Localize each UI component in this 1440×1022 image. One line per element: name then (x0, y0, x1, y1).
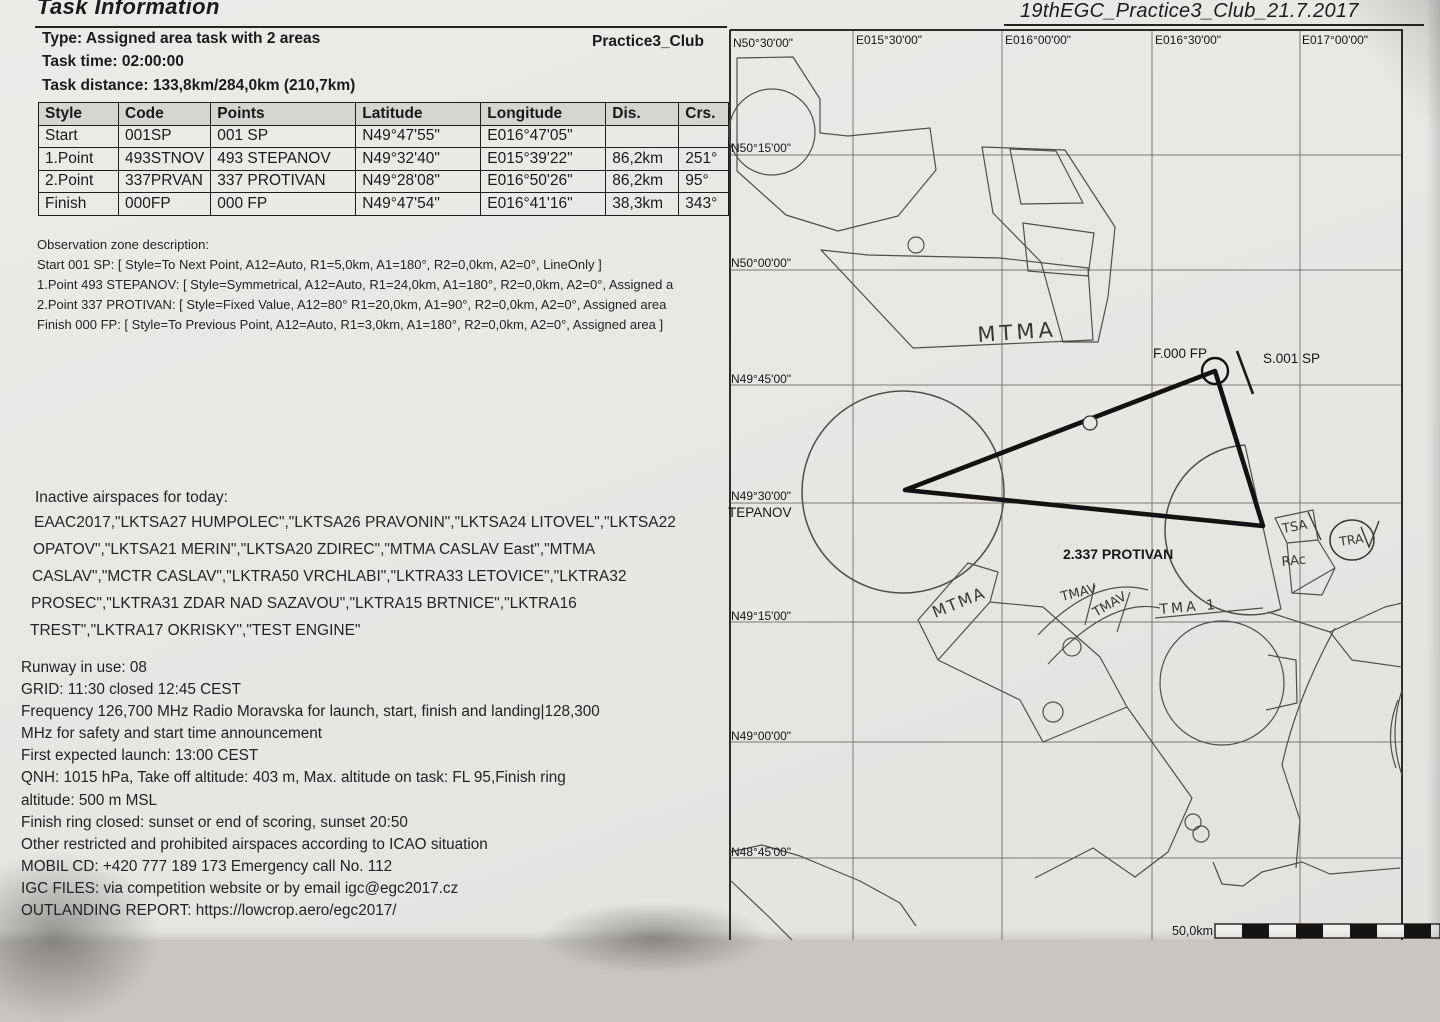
col-distance: Dis. (606, 103, 679, 126)
cell: 38,3km (606, 193, 679, 216)
cell: 000FP (119, 193, 211, 216)
cell: 000 FP (211, 193, 356, 216)
airspace-line: CASLAV","MCTR CASLAV","LKTRA50 VRCHLABI"… (32, 568, 727, 586)
table-row: 2.Point 337PRVAN 337 PROTIVAN N49°28'08"… (39, 170, 729, 193)
briefing-line: OUTLANDING REPORT: https://lowcrop.aero/… (21, 900, 729, 922)
col-style: Style (39, 103, 119, 126)
task-type-line: Type: Assigned area task with 2 areas (42, 30, 320, 48)
finish-point-label: F.000 FP (1153, 346, 1207, 361)
task-distance-line: Task distance: 133,8km/284,0km (210,7km) (42, 77, 355, 95)
airspace-line: TREST","LKTRA17 OKRISKY","TEST ENGINE" (30, 622, 725, 640)
cell: Finish (39, 193, 119, 216)
airspace-line: EAAC2017,"LKTSA27 HUMPOLEC","LKTSA26 PRA… (34, 514, 729, 532)
finish-ring (1202, 358, 1228, 384)
cell: E015°39'22" (481, 148, 606, 171)
col-longitude: Longitude (481, 103, 606, 126)
start-point-label: S.001 SP (1263, 351, 1320, 366)
cell: 493 STEPANOV (211, 148, 356, 171)
briefing-line: Runway in use: 08 (21, 657, 729, 679)
cell: N49°32'40" (356, 148, 481, 171)
paper-sheet: Task Information 19thEGC_Practice3_Club_… (0, 0, 1440, 940)
briefing-line: altitude: 500 m MSL (21, 790, 729, 812)
col-latitude: Latitude (356, 103, 481, 126)
header-underline (1004, 24, 1424, 26)
cell: E016°47'05" (481, 125, 606, 148)
briefing-line: Frequency 126,700 MHz Radio Moravska for… (21, 701, 729, 723)
cell: 337PRVAN (119, 170, 211, 193)
cell: N49°47'55" (356, 125, 481, 148)
handwritten-annotation: TMAV (1090, 589, 1130, 621)
table-header-row: Style Code Points Latitude Longitude Dis… (39, 103, 729, 126)
scale-label: 50,0km (1172, 924, 1213, 938)
doc-header-right: 19thEGC_Practice3_Club_21.7.2017 (1020, 0, 1359, 23)
handwritten-annotation: MTMA (977, 318, 1058, 347)
corner-shadow (1350, 0, 1440, 150)
cell: N49°28'08" (356, 170, 481, 193)
briefing-line: QNH: 1015 hPa, Take off altitude: 403 m,… (21, 767, 729, 789)
cell: E016°41'16" (481, 193, 606, 216)
briefing-line: IGC FILES: via competition website or by… (21, 878, 729, 900)
task-time-line: Task time: 02:00:00 (42, 53, 184, 71)
edge-shadow (0, 930, 1440, 940)
lat-label: N49°30'00" (731, 489, 791, 503)
obs-zone-line: 1.Point 493 STEPANOV: [ Style=Symmetrica… (37, 277, 727, 292)
task-triangle (905, 371, 1263, 526)
lat-label: N50°00'00" (731, 256, 791, 270)
cell: 343° (679, 193, 729, 216)
handwritten-circle (1330, 520, 1374, 560)
lon-label: E017°00'00" (1302, 33, 1368, 47)
lon-label: E016°30'00" (1155, 33, 1221, 47)
edge-shadow (1426, 0, 1440, 940)
map-grid (730, 30, 1402, 940)
handwritten-annotation: TSA (1280, 518, 1309, 537)
briefing-line: MOBIL CD: +420 777 189 173 Emergency cal… (21, 856, 729, 878)
cell: Start (39, 125, 119, 148)
briefing-line: Finish ring closed: sunset or end of sco… (21, 812, 729, 834)
cell: 001 SP (211, 125, 356, 148)
briefing-line: Other restricted and prohibited airspace… (21, 834, 729, 856)
handwritten-annotation: TMA 1 (1158, 597, 1219, 618)
col-course: Crs. (679, 103, 729, 126)
cell (679, 125, 729, 148)
briefing-line: MHz for safety and start time announceme… (21, 723, 729, 745)
airspace-line: PROSEC","LKTRA31 ZDAR NAD SAZAVOU","LKTR… (31, 595, 726, 613)
cell: 337 PROTIVAN (211, 170, 356, 193)
cell: 493STNOV (119, 148, 211, 171)
handwritten-annotation: TRA (1337, 531, 1365, 549)
cell: 1.Point (39, 148, 119, 171)
col-points: Points (211, 103, 356, 126)
lat-label: N50°15'00" (731, 141, 791, 155)
lat-label: N49°15'00" (731, 609, 791, 623)
briefing-line: First expected launch: 13:00 CEST (21, 745, 729, 767)
cell: 86,2km (606, 170, 679, 193)
airspace-line: OPATOV","LKTSA21 MERIN","LKTSA20 ZDIREC"… (33, 541, 728, 559)
protivan-label: 2.337 PROTIVAN (1063, 546, 1173, 562)
pen-tick (1361, 521, 1379, 547)
handwritten-annotations: MTMA MTMA TMAV TMAV TMA 1 TSA RAc TRA (929, 318, 1379, 622)
col-code: Code (119, 103, 211, 126)
cell: 001SP (119, 125, 211, 148)
obs-zone-line: 2.Point 337 PROTIVAN: [ Style=Fixed Valu… (37, 297, 727, 312)
waypoint-table: Style Code Points Latitude Longitude Dis… (38, 102, 729, 216)
cell (606, 125, 679, 148)
cell: E016°50'26" (481, 170, 606, 193)
briefing-line: GRID: 11:30 closed 12:45 CEST (21, 679, 729, 701)
airspace-outlines (729, 57, 1402, 940)
handwritten-annotation: MTMA (929, 583, 988, 622)
pen-slash (1308, 512, 1321, 540)
map-border (730, 30, 1402, 940)
handwritten-annotation: RAc (1281, 553, 1307, 570)
table-row: 1.Point 493STNOV 493 STEPANOV N49°32'40"… (39, 148, 729, 171)
title-underline (35, 26, 727, 28)
obs-zone-line: Finish 000 FP: [ Style=To Previous Point… (37, 317, 727, 332)
lat-label: N49°00'00" (731, 729, 791, 743)
handwritten-annotation: TMAV (1058, 582, 1098, 606)
lon-label: E016°00'00" (1005, 33, 1071, 47)
page-title: Task Information (37, 0, 220, 20)
start-line (1237, 351, 1253, 394)
inactive-airspaces-heading: Inactive airspaces for today: (35, 489, 730, 507)
table-row: Finish 000FP 000 FP N49°47'54" E016°41'1… (39, 193, 729, 216)
briefing-block: Runway in use: 08 GRID: 11:30 closed 12:… (21, 657, 729, 922)
cell: 2.Point (39, 170, 119, 193)
lat-label: N49°45'00" (731, 372, 791, 386)
scale-bar (1215, 924, 1440, 938)
cell: 86,2km (606, 148, 679, 171)
cell: 251° (679, 148, 729, 171)
leg-waypoint-circle (1083, 416, 1097, 430)
cell: 95° (679, 170, 729, 193)
obs-zone-line: Start 001 SP: [ Style=To Next Point, A12… (37, 257, 727, 272)
task-name: Practice3_Club (592, 33, 704, 51)
lat-label: N48°45'00" (731, 845, 791, 859)
obs-zone-heading: Observation zone description: (37, 237, 727, 252)
cell: N49°47'54" (356, 193, 481, 216)
stepanov-label-partial: TEPANOV (728, 505, 792, 520)
table-row: Start 001SP 001 SP N49°47'55" E016°47'05… (39, 125, 729, 148)
lat-label: N50°30'00" (733, 36, 793, 50)
lon-label: E015°30'00" (856, 33, 922, 47)
